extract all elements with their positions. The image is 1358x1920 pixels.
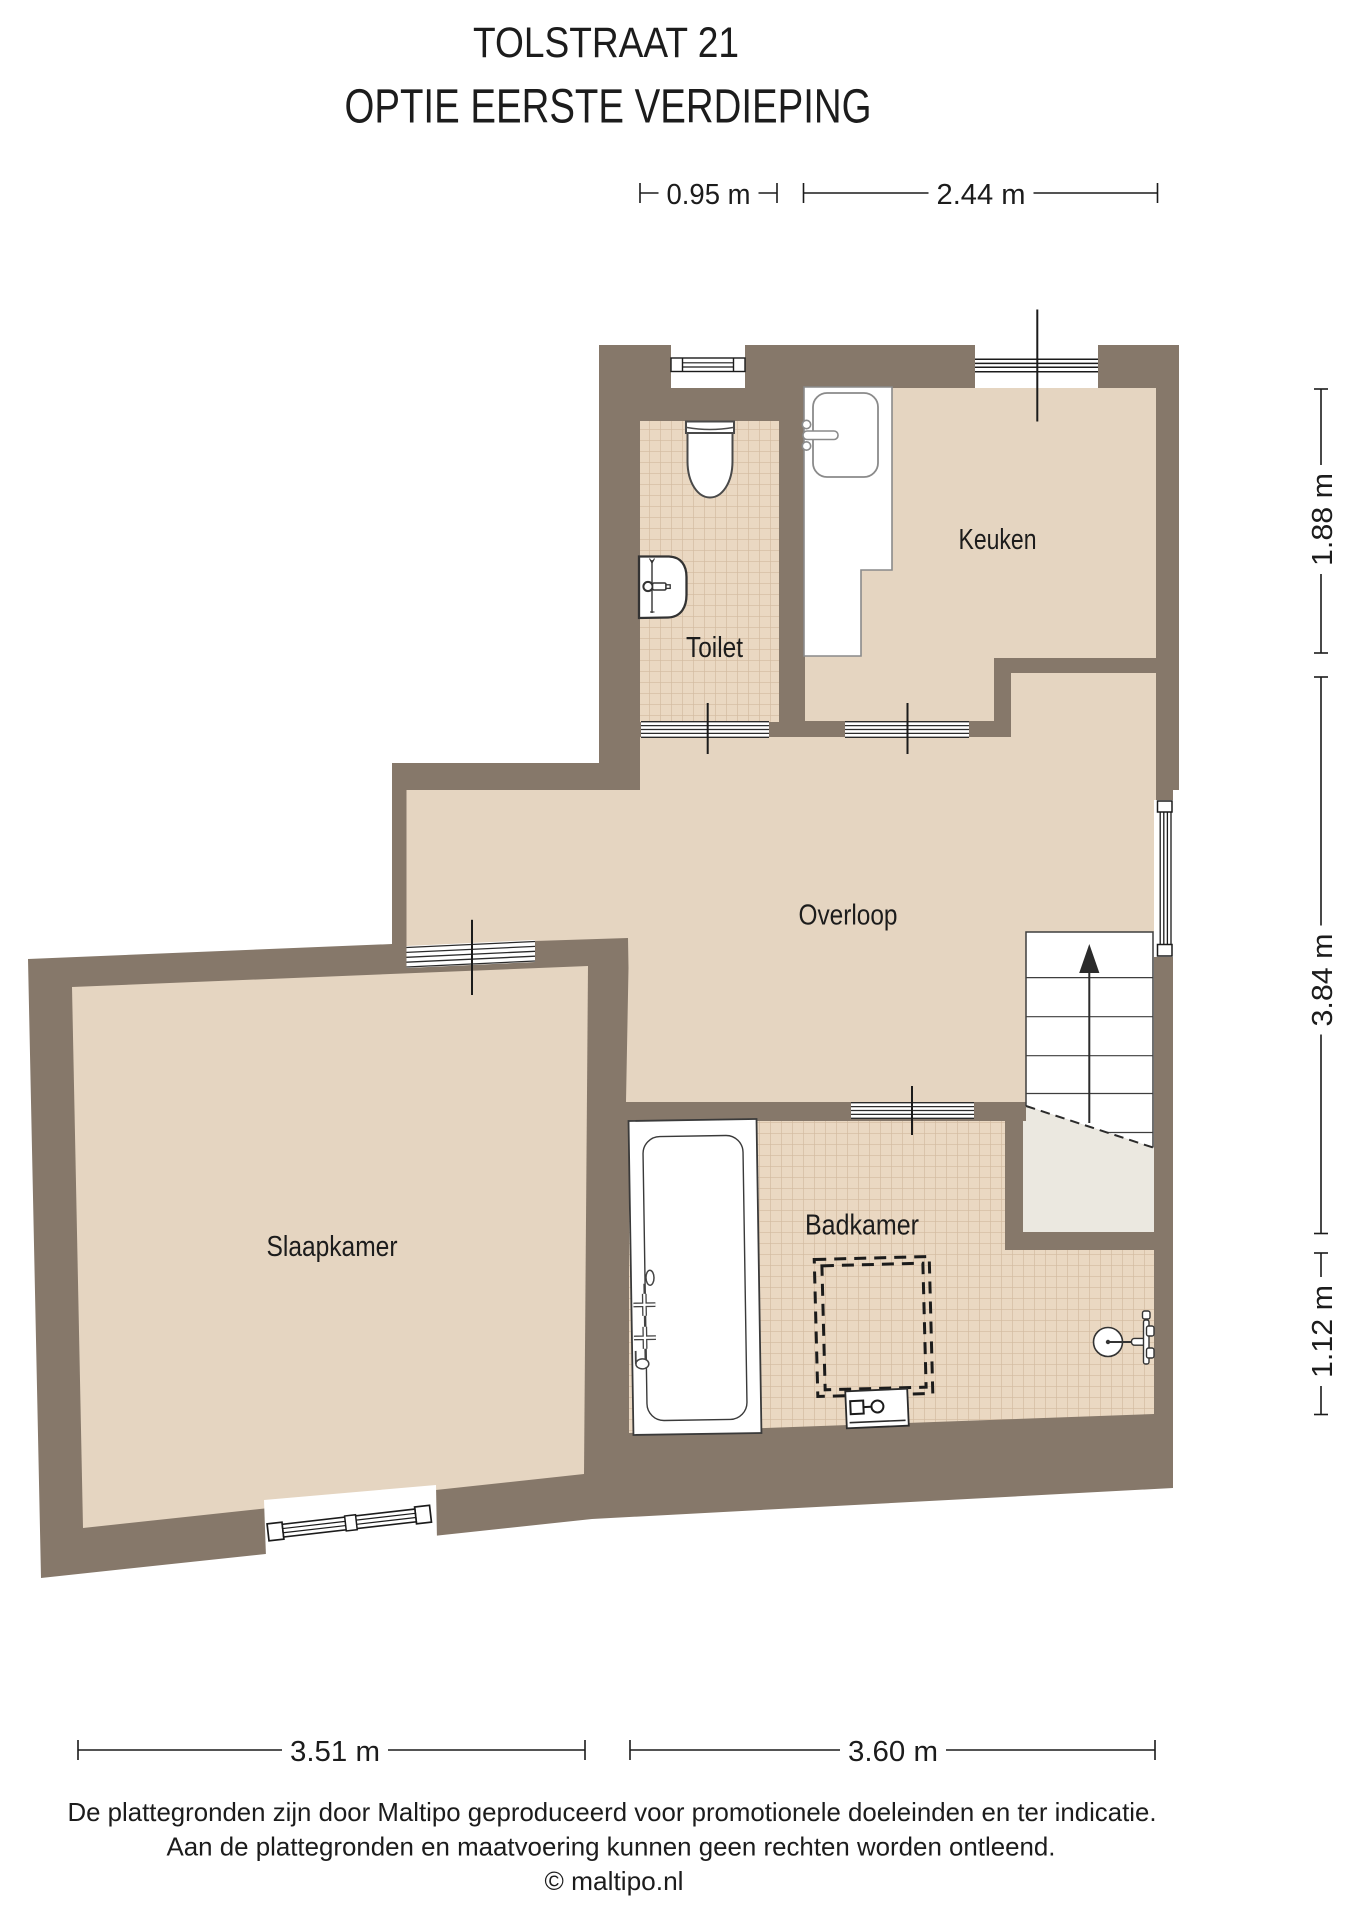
svg-text:0.95 m: 0.95 m	[667, 179, 751, 211]
svg-text:TOLSTRAAT 21: TOLSTRAAT 21	[473, 19, 739, 67]
svg-text:Keuken: Keuken	[959, 524, 1037, 556]
svg-text:3.51 m: 3.51 m	[290, 1736, 380, 1768]
svg-text:3.84 m: 3.84 m	[1307, 934, 1339, 1027]
svg-text:Badkamer: Badkamer	[805, 1210, 919, 1242]
svg-text:2.44 m: 2.44 m	[937, 179, 1026, 211]
svg-text:Slaapkamer: Slaapkamer	[267, 1231, 398, 1263]
svg-text:1.12 m: 1.12 m	[1307, 1285, 1339, 1378]
svg-text:1.88 m: 1.88 m	[1307, 473, 1339, 566]
svg-text:De plattegronden zijn door Mal: De plattegronden zijn door Maltipo gepro…	[68, 1797, 1157, 1827]
svg-text:Toilet: Toilet	[686, 632, 743, 664]
svg-text:3.60 m: 3.60 m	[848, 1736, 938, 1768]
svg-text:© maltipo.nl: © maltipo.nl	[545, 1866, 684, 1896]
svg-text:Aan de plattegronden en maatvo: Aan de plattegronden en maatvoering kunn…	[167, 1832, 1056, 1862]
svg-text:OPTIE EERSTE VERDIEPING: OPTIE EERSTE VERDIEPING	[345, 81, 872, 134]
svg-text:Overloop: Overloop	[799, 900, 898, 932]
